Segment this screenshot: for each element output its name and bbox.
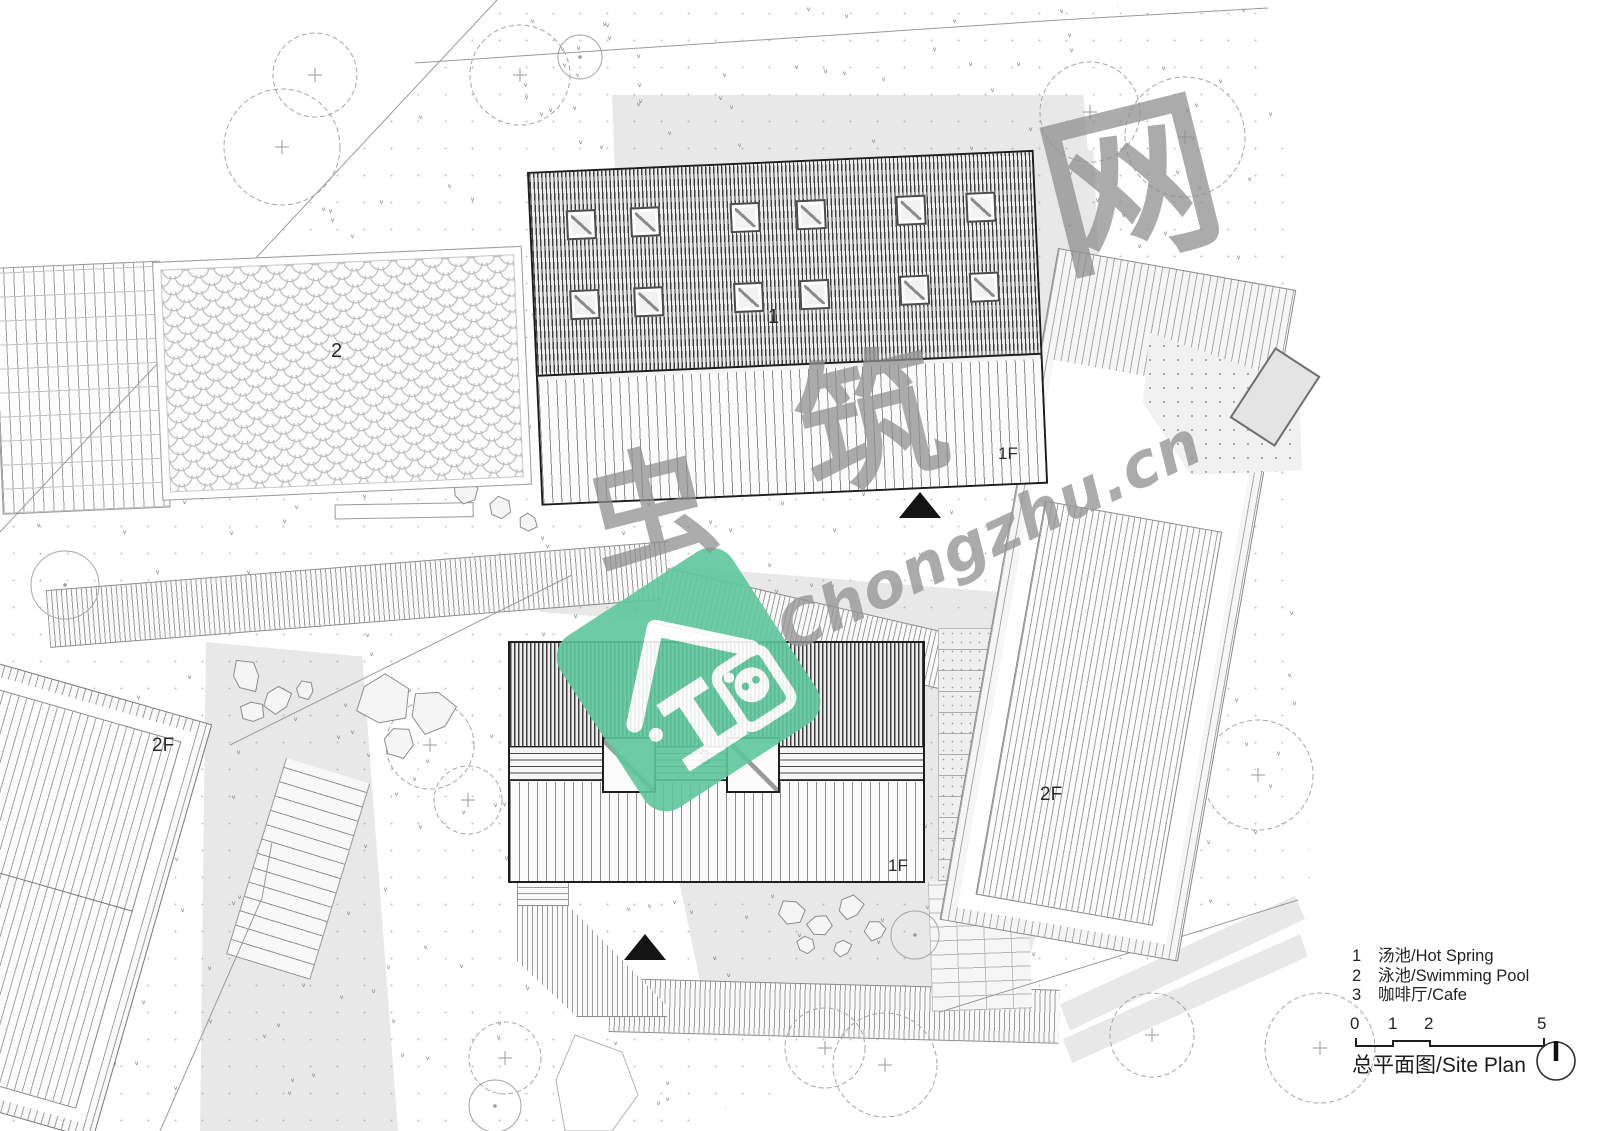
site-plan: ∨∨∨∨∨∨∨∨∨∨∨∨∨∨∨∨∨∨∨∨∨∨∨∨∨∨∨∨∨∨∨∨∨∨∨∨∨∨∨∨… [0,0,1600,1131]
north-arrow-icon [0,0,1600,1131]
